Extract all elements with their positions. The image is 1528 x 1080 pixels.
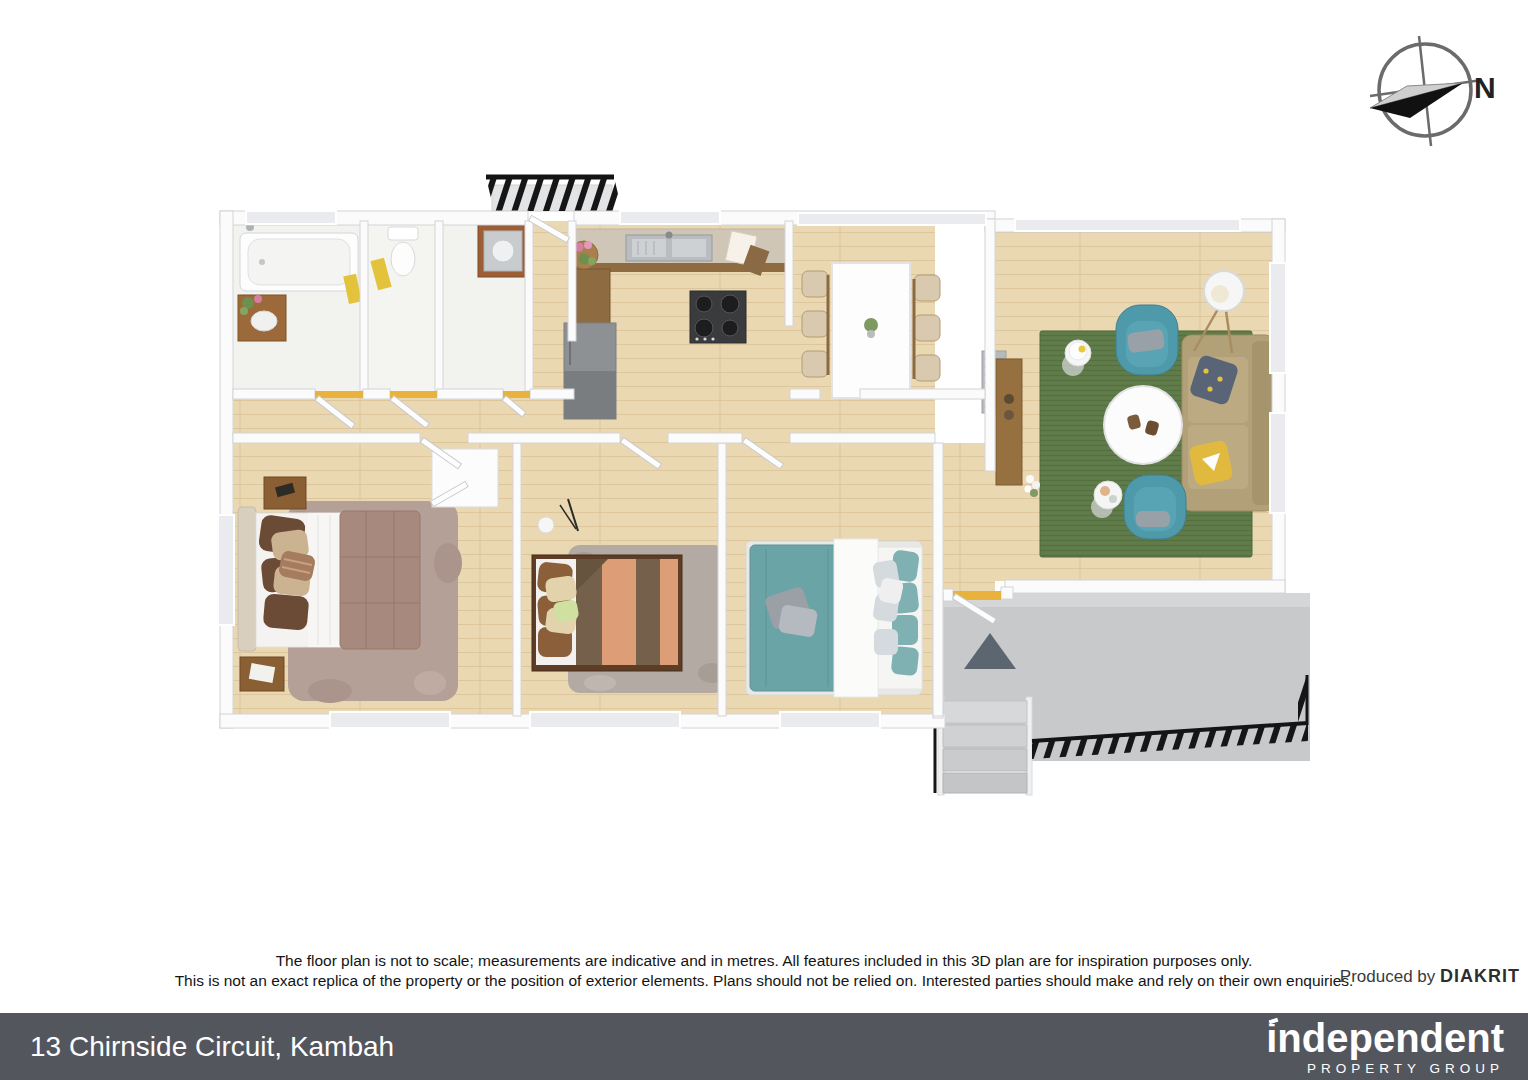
logo-accent	[1269, 1019, 1279, 1024]
compass-north-label: N	[1474, 71, 1496, 104]
nightstand-top	[264, 477, 306, 509]
sideboard	[996, 359, 1022, 485]
floor-plan	[180, 163, 1340, 813]
headboard	[238, 507, 256, 651]
disclaimer-line2: This is not an exact replica of the prop…	[0, 971, 1528, 991]
producer-brand: DIAKRIT	[1440, 966, 1520, 986]
dining-chair	[802, 271, 828, 297]
threshold	[315, 391, 363, 398]
table-plant	[864, 318, 878, 332]
dining-chair	[914, 275, 940, 301]
produced-by: Produced by DIAKRIT	[1340, 966, 1520, 987]
floorplan-page: { "compass": { "label": "N" }, "disclaim…	[0, 0, 1528, 1080]
sheet	[308, 513, 344, 647]
dining-chair	[802, 311, 828, 337]
kitchen-sink	[626, 232, 712, 262]
vanity	[238, 295, 286, 341]
property-address: 13 Chirnside Circuit, Kambah	[0, 1031, 394, 1063]
disclaimer: The floor plan is not to scale; measurem…	[0, 951, 1528, 990]
coffee-table	[1104, 386, 1182, 464]
dining-chair	[914, 355, 940, 381]
back-porch	[486, 177, 622, 211]
compass-icon: N	[1352, 28, 1512, 158]
dining-chair	[914, 315, 940, 341]
sofa	[1182, 335, 1274, 511]
armchair-top	[1116, 305, 1178, 375]
laundry	[478, 225, 528, 277]
duvet-master	[340, 511, 420, 649]
dining-chair	[802, 351, 828, 377]
agency-logo-name: independent	[1266, 1018, 1504, 1058]
threshold	[390, 391, 437, 398]
throw-bed3	[834, 539, 878, 697]
agency-logo-tagline: PROPERTY GROUP	[1307, 1061, 1504, 1076]
toilet	[391, 242, 415, 276]
stove	[690, 291, 746, 343]
nightstand-bottom	[240, 657, 284, 691]
bedroom-3	[746, 539, 922, 697]
porch-railing	[486, 177, 622, 211]
wall-lamp	[538, 517, 554, 533]
agency-logo: independent PROPERTY GROUP	[1266, 1018, 1528, 1076]
armchair-bottom	[1124, 475, 1186, 539]
disclaimer-line1: The floor plan is not to scale; measurem…	[0, 951, 1528, 971]
wardrobe	[431, 449, 499, 507]
duvet-bed2	[576, 559, 678, 665]
footer-bar: 13 Chirnside Circuit, Kambah independent…	[0, 1013, 1528, 1080]
